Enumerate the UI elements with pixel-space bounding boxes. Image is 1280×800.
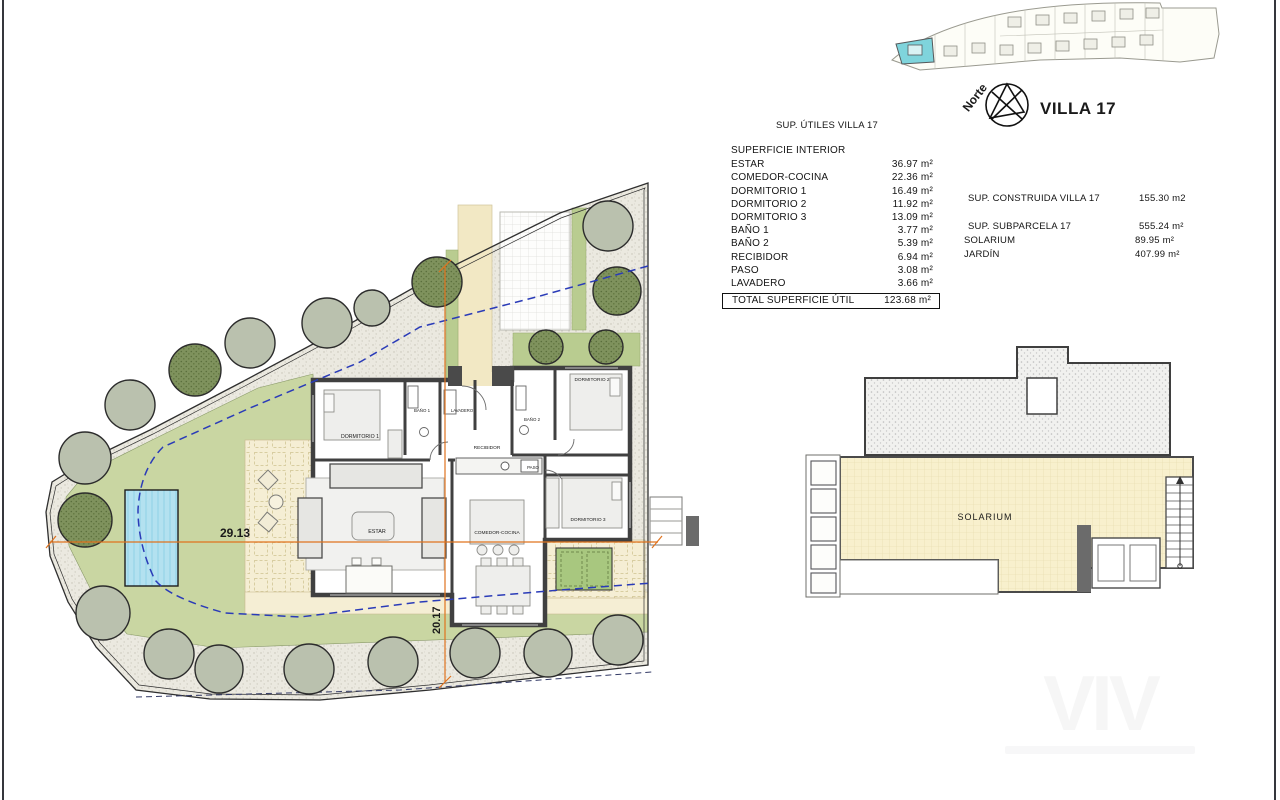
row-value: 16.49 m² bbox=[892, 185, 933, 198]
row-label: PASO bbox=[731, 264, 759, 277]
table-row: DORMITORIO 116.49 m² bbox=[706, 185, 948, 198]
staircase bbox=[1166, 476, 1193, 568]
row-label: DORMITORIO 2 bbox=[731, 198, 807, 211]
lower-terrace bbox=[840, 560, 998, 594]
row-label: BAÑO 1 bbox=[731, 224, 769, 237]
table-row: LAVADERO3.66 m² bbox=[706, 277, 948, 290]
row-label: LAVADERO bbox=[731, 277, 786, 290]
row-label: JARDÍN bbox=[960, 249, 1135, 260]
summary-row: JARDÍN407.99 m² bbox=[960, 249, 1205, 260]
areas-table: SUP. ÚTILES VILLA 17 SUPERFICIE INTERIOR… bbox=[706, 120, 948, 309]
planters bbox=[811, 461, 836, 593]
table-row: DORMITORIO 313.09 m² bbox=[706, 211, 948, 224]
row-label: SUP. SUBPARCELA 17 bbox=[960, 221, 1139, 232]
tree bbox=[524, 629, 572, 677]
plan-sheet: 29.13 20.17 DORMITORIO 1 BAÑO 1 LAVADERO… bbox=[0, 0, 1280, 800]
dark-tree bbox=[529, 330, 563, 364]
table-row: COMEDOR-COCINA22.36 m² bbox=[706, 171, 948, 184]
table-row: BAÑO 25.39 m² bbox=[706, 237, 948, 250]
dining-table bbox=[476, 566, 530, 606]
entrance-opening bbox=[462, 372, 492, 386]
row-label: SUP. CONSTRUIDA VILLA 17 bbox=[960, 193, 1139, 204]
row-value: 13.09 m² bbox=[892, 211, 933, 224]
row-value: 155.30 m2 bbox=[1139, 193, 1186, 204]
row-value: 11.92 m² bbox=[893, 198, 933, 211]
dark-tree bbox=[412, 257, 462, 307]
tree bbox=[302, 298, 352, 348]
row-value: 407.99 m² bbox=[1135, 249, 1180, 260]
tree bbox=[450, 628, 500, 678]
total-value: 123.68 m² bbox=[884, 295, 931, 307]
outdoor-table bbox=[346, 566, 392, 593]
sofa-left bbox=[298, 498, 322, 558]
toilet-bano1 bbox=[420, 428, 429, 437]
table-row: PASO3.08 m² bbox=[706, 264, 948, 277]
row-label: BAÑO 2 bbox=[731, 237, 769, 250]
sink bbox=[501, 462, 509, 470]
page-title: VILLA 17 bbox=[1040, 99, 1116, 118]
dark-tree bbox=[58, 493, 112, 547]
compass-needle bbox=[990, 84, 1024, 118]
summary-row: SOLARIUM89.95 m² bbox=[960, 235, 1205, 246]
total-row: TOTAL SUPERFICIE ÚTIL 123.68 m² bbox=[722, 293, 940, 309]
tree bbox=[76, 586, 130, 640]
row-value: 3.77 m² bbox=[898, 224, 933, 237]
entry-path bbox=[458, 205, 492, 385]
kitchen-island bbox=[470, 500, 524, 544]
room-label-bano2: BAÑO 2 bbox=[524, 417, 541, 422]
row-value: 5.39 m² bbox=[898, 237, 933, 250]
table-row: RECIBIDOR6.94 m² bbox=[706, 251, 948, 264]
dark-tree bbox=[589, 330, 623, 364]
compass bbox=[986, 84, 1028, 126]
room-label-bano1: BAÑO 1 bbox=[414, 408, 431, 413]
room-label-lavadero: LAVADERO bbox=[451, 408, 474, 413]
sofa-top bbox=[330, 464, 422, 488]
dark-tree bbox=[169, 344, 221, 396]
row-value: 555.24 m² bbox=[1139, 221, 1184, 232]
drawing-canvas: 29.13 20.17 DORMITORIO 1 BAÑO 1 LAVADERO… bbox=[0, 0, 1280, 800]
row-label: SOLARIUM bbox=[960, 235, 1135, 246]
tree bbox=[368, 637, 418, 687]
row-value: 6.94 m² bbox=[898, 251, 933, 264]
tree bbox=[354, 290, 390, 326]
room-label-dormitorio2: DORMITORIO 2 bbox=[574, 377, 609, 383]
tree bbox=[225, 318, 275, 368]
solarium-wall bbox=[1077, 525, 1091, 592]
row-value: 89.95 m² bbox=[1135, 235, 1174, 246]
dimension-label-vertical: 20.17 bbox=[431, 606, 443, 634]
row-value: 3.08 m² bbox=[898, 264, 933, 277]
porch-wall-left bbox=[448, 366, 462, 386]
parking-area bbox=[500, 212, 570, 330]
lounger-deck bbox=[556, 548, 612, 590]
areas-table-title: SUP. ÚTILES VILLA 17 bbox=[706, 120, 948, 131]
room-label-comedor: COMEDOR-COCINA bbox=[474, 530, 520, 536]
villa17-house-icon bbox=[908, 45, 922, 55]
key-plan-outline bbox=[892, 3, 1219, 70]
row-label: DORMITORIO 1 bbox=[731, 185, 807, 198]
total-label: TOTAL SUPERFICIE ÚTIL bbox=[732, 295, 854, 307]
sofa-right bbox=[422, 498, 446, 558]
tree bbox=[583, 201, 633, 251]
solarium-plan: SOLARIUM bbox=[806, 347, 1193, 597]
row-label: DORMITORIO 3 bbox=[731, 211, 807, 224]
summary-row: SUP. SUBPARCELA 17555.24 m² bbox=[960, 221, 1205, 232]
room-label-estar: ESTAR bbox=[368, 529, 386, 535]
tree bbox=[144, 629, 194, 679]
key-plan bbox=[892, 0, 1219, 75]
table-row: ESTAR36.97 m² bbox=[706, 158, 948, 171]
room-label-dormitorio3: DORMITORIO 3 bbox=[570, 517, 605, 523]
roof-area bbox=[865, 347, 1170, 455]
summary-row: SUP. CONSTRUIDA VILLA 17155.30 m2 bbox=[960, 193, 1205, 204]
utility-box bbox=[686, 516, 699, 546]
toilet-bano2 bbox=[520, 426, 529, 435]
tree bbox=[105, 380, 155, 430]
table-row: DORMITORIO 211.92 m² bbox=[706, 198, 948, 211]
row-label: ESTAR bbox=[731, 158, 765, 171]
tree bbox=[593, 615, 643, 665]
row-label: RECIBIDOR bbox=[731, 251, 788, 264]
table-row: BAÑO 13.77 m² bbox=[706, 224, 948, 237]
room-label-dormitorio1: DORMITORIO 1 bbox=[341, 434, 379, 440]
room-label-paso: PASO bbox=[527, 465, 539, 470]
row-label: COMEDOR-COCINA bbox=[731, 171, 828, 184]
room-label-recibidor: RECIBIDOR bbox=[474, 445, 501, 451]
areas-table-header: SUPERFICIE INTERIOR bbox=[706, 145, 948, 158]
roof-notch bbox=[1027, 378, 1057, 414]
row-value: 22.36 m² bbox=[892, 171, 933, 184]
site-plan: 29.13 20.17 DORMITORIO 1 BAÑO 1 LAVADERO… bbox=[46, 183, 699, 700]
tree bbox=[284, 644, 334, 694]
tree bbox=[59, 432, 111, 484]
coffee-table bbox=[352, 512, 394, 540]
row-value: 36.97 m² bbox=[892, 158, 933, 171]
tree bbox=[195, 645, 243, 693]
wardrobe bbox=[388, 430, 402, 458]
dimension-label-horizontal: 29.13 bbox=[220, 526, 250, 540]
row-value: 3.66 m² bbox=[898, 277, 933, 290]
wardrobe-dorm3 bbox=[546, 478, 559, 528]
solarium-label: SOLARIUM bbox=[957, 512, 1012, 522]
